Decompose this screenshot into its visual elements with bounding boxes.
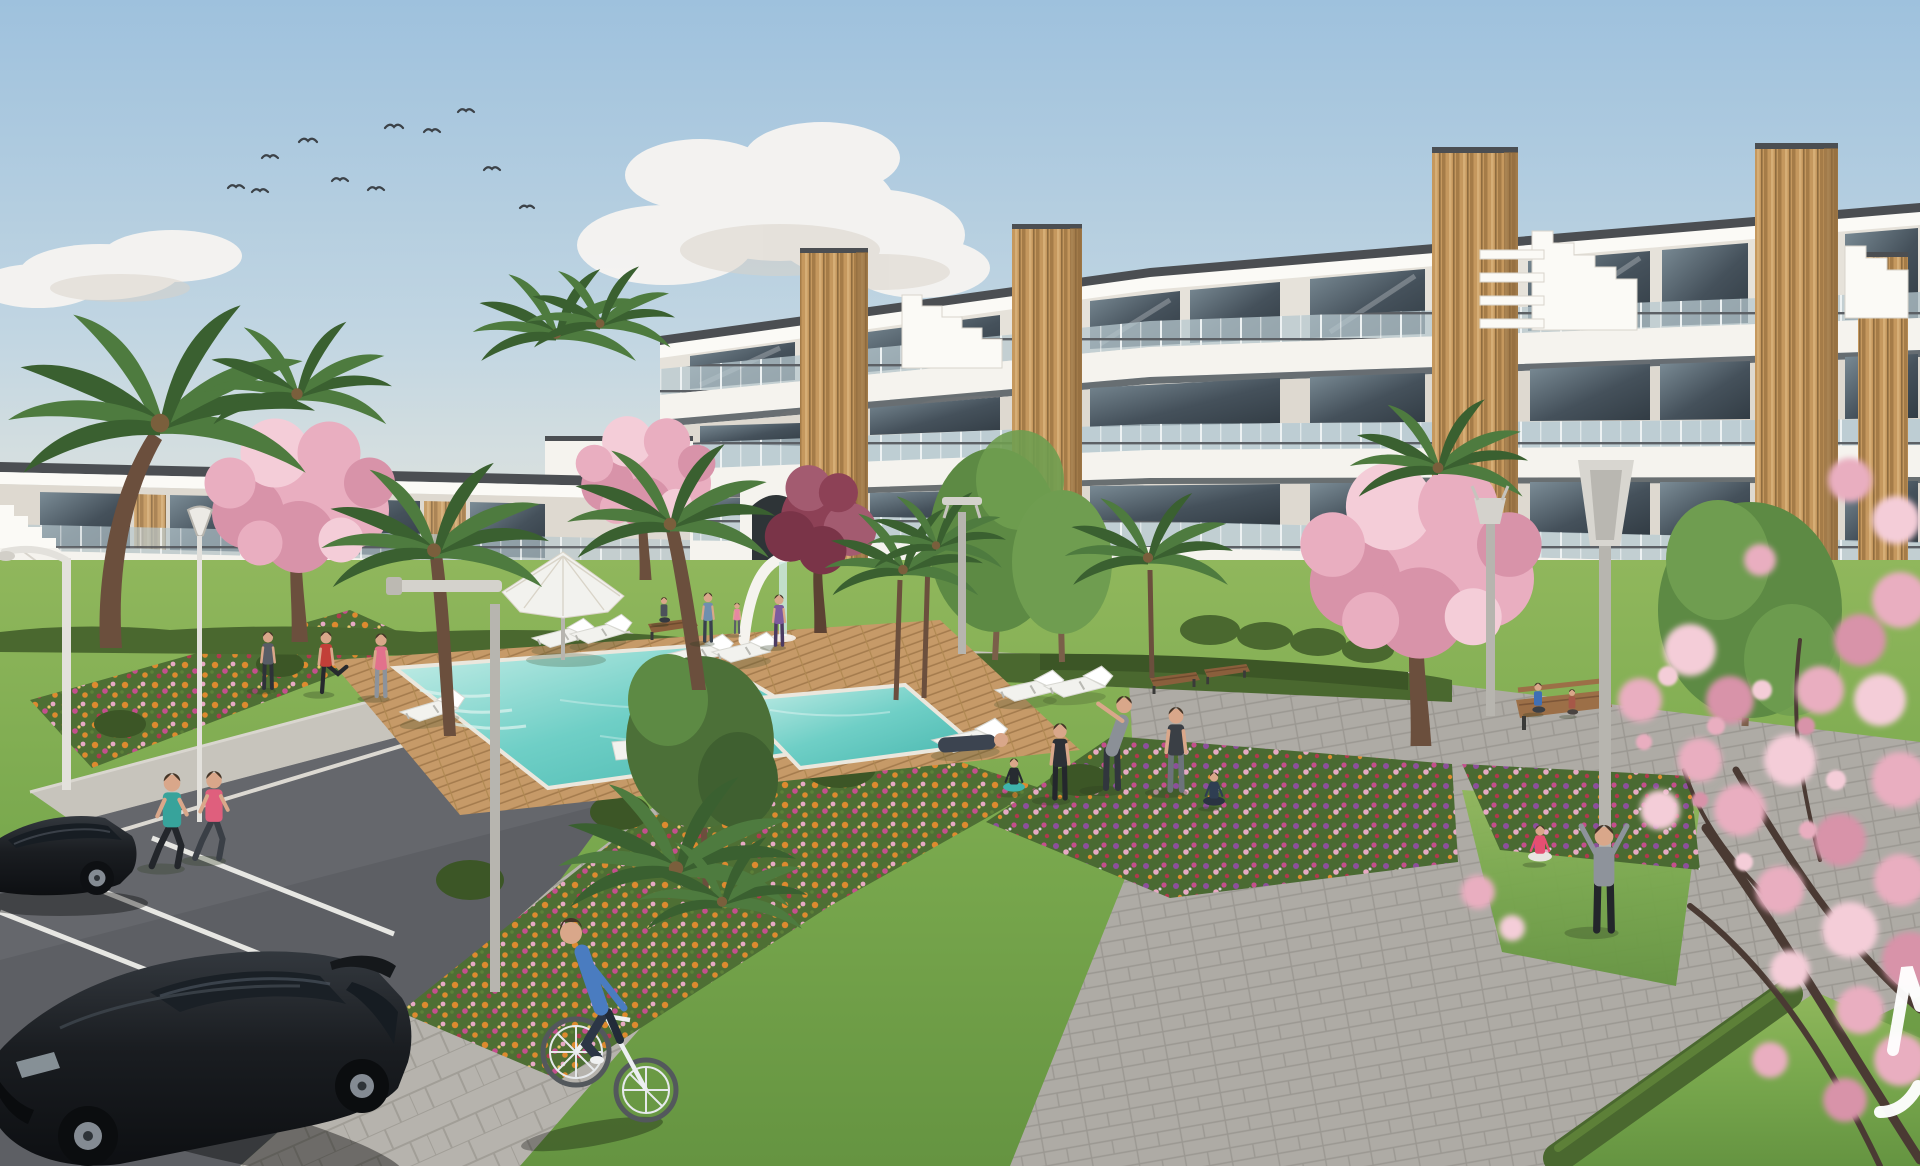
render-image: Sunny 3D architectural rendering of a mo… [0, 0, 1920, 1166]
scene-canvas: Sunny 3D architectural rendering of a mo… [0, 0, 1920, 1166]
